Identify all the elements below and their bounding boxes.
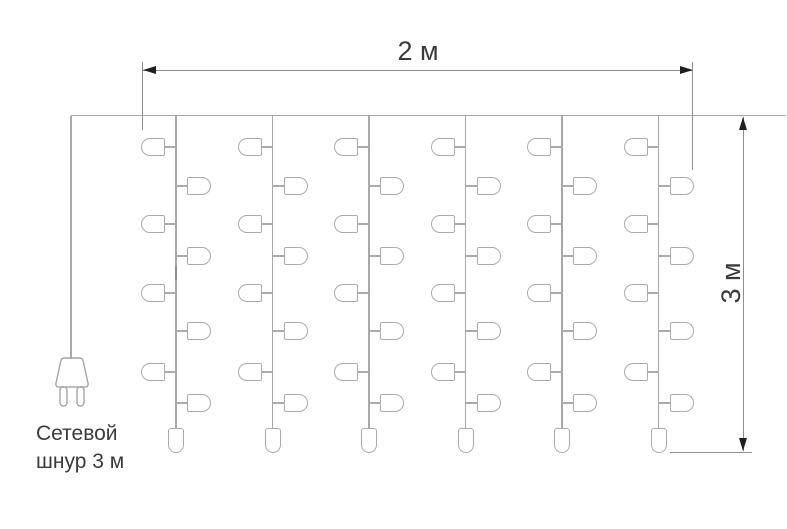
bulb-icon [334, 284, 358, 302]
bulb-icon [477, 322, 501, 340]
bulb-icon [380, 322, 404, 340]
bulb-stem [165, 146, 176, 148]
bulb-stem [369, 185, 380, 187]
bulb-stem [562, 255, 573, 257]
bulb-icon [187, 247, 211, 265]
bulb-icon [527, 215, 551, 233]
curtain-lights-diagram: 2 м 3 м Сетевой шнур 3 м [0, 0, 787, 529]
bulb-stem [176, 402, 187, 404]
bulb-icon [624, 284, 648, 302]
bulb-stem [262, 292, 273, 294]
bulb-stem [273, 185, 284, 187]
bulb-stem [176, 330, 187, 332]
bulb-icon [527, 138, 551, 156]
bulb-icon [431, 215, 455, 233]
bulb-icon [380, 247, 404, 265]
power-cord-label-line2: шнур 3 м [36, 448, 124, 476]
bulb-stem [455, 371, 466, 373]
height-dim-line [743, 117, 744, 451]
bulb-stem [358, 371, 369, 373]
bulb-stem [648, 146, 659, 148]
bulb-stem [551, 292, 562, 294]
bulb-stem [551, 223, 562, 225]
bulb-stem [262, 146, 273, 148]
bulb-stem [466, 402, 477, 404]
bulb-stem [466, 255, 477, 257]
bulb-stem [176, 185, 187, 187]
bulb-stem [648, 292, 659, 294]
bulb-icon [573, 394, 597, 412]
bulb-icon [477, 394, 501, 412]
bulb-stem [466, 185, 477, 187]
bulb-stem [273, 402, 284, 404]
bulb-stem [648, 371, 659, 373]
bulb-icon [670, 394, 694, 412]
bulb-stem [659, 402, 670, 404]
bulb-icon [573, 177, 597, 195]
bulb-stem [562, 330, 573, 332]
power-cord-line [70, 116, 71, 359]
strand-line [272, 116, 273, 429]
strand-line [561, 116, 562, 429]
bulb-stem [648, 223, 659, 225]
bulb-icon [187, 177, 211, 195]
arrowhead-up-icon [739, 117, 747, 130]
bulb-stem [358, 292, 369, 294]
bulb-icon [527, 363, 551, 381]
bulb-icon [141, 363, 165, 381]
bulb-stem [562, 185, 573, 187]
bulb-icon [670, 322, 694, 340]
bulb-stem [369, 330, 380, 332]
end-bulb-icon [168, 428, 184, 453]
bulb-icon [573, 247, 597, 265]
bulb-stem [273, 330, 284, 332]
bulb-icon [238, 215, 262, 233]
bulb-icon [187, 322, 211, 340]
bulb-icon [334, 363, 358, 381]
bulb-icon [141, 215, 165, 233]
bulb-stem [369, 402, 380, 404]
height-dimension-label: 3 м [717, 223, 745, 343]
bulb-stem [358, 223, 369, 225]
bulb-icon [238, 138, 262, 156]
bulb-icon [431, 138, 455, 156]
bulb-icon [670, 177, 694, 195]
bulb-icon [431, 363, 455, 381]
bulb-stem [165, 292, 176, 294]
width-dim-ext-right [692, 62, 693, 170]
bulb-stem [659, 330, 670, 332]
bulb-icon [670, 247, 694, 265]
bulb-stem [262, 371, 273, 373]
bulb-icon [334, 138, 358, 156]
bulb-stem [551, 371, 562, 373]
strand-line [465, 116, 466, 429]
bulb-icon [238, 284, 262, 302]
end-bulb-icon [361, 428, 377, 453]
bulb-stem [551, 146, 562, 148]
bulb-icon [624, 363, 648, 381]
power-cord-label-line1: Сетевой [36, 420, 124, 448]
bulb-stem [273, 255, 284, 257]
bulb-icon [187, 394, 211, 412]
power-cord-label: Сетевой шнур 3 м [36, 420, 124, 476]
bulb-icon [141, 284, 165, 302]
bulb-icon [284, 394, 308, 412]
arrowhead-left-icon [143, 66, 156, 74]
width-dim-line [143, 70, 693, 71]
bulb-icon [334, 215, 358, 233]
strand-line [658, 116, 659, 429]
bulb-stem [659, 185, 670, 187]
arrowhead-down-icon [739, 438, 747, 451]
end-bulb-icon [265, 428, 281, 453]
wire-splice [175, 266, 178, 280]
bulb-stem [165, 371, 176, 373]
width-dimension-label: 2 м [358, 36, 478, 67]
bulb-stem [262, 223, 273, 225]
bulb-icon [380, 394, 404, 412]
bulb-icon [477, 247, 501, 265]
top-wire [71, 115, 786, 116]
bulb-stem [562, 402, 573, 404]
bulb-icon [380, 177, 404, 195]
bulb-icon [624, 215, 648, 233]
bulb-icon [284, 177, 308, 195]
bulb-icon [238, 363, 262, 381]
end-bulb-icon [458, 428, 474, 453]
bulb-stem [176, 255, 187, 257]
end-bulb-icon [554, 428, 570, 453]
power-plug-icon [48, 354, 98, 410]
bulb-stem [455, 292, 466, 294]
bulb-icon [477, 177, 501, 195]
bulb-stem [358, 146, 369, 148]
bulb-icon [141, 138, 165, 156]
strand-line [368, 116, 369, 429]
bulb-icon [573, 322, 597, 340]
bulb-icon [284, 322, 308, 340]
bulb-stem [659, 255, 670, 257]
bulb-stem [455, 223, 466, 225]
bulb-icon [624, 138, 648, 156]
end-bulb-icon [651, 428, 667, 453]
arrowhead-right-icon [680, 66, 693, 74]
bulb-stem [455, 146, 466, 148]
height-dim-ext-bottom [670, 452, 752, 453]
bulb-stem [466, 330, 477, 332]
bulb-icon [431, 284, 455, 302]
bulb-icon [527, 284, 551, 302]
bulb-stem [369, 255, 380, 257]
bulb-stem [165, 223, 176, 225]
bulb-icon [284, 247, 308, 265]
